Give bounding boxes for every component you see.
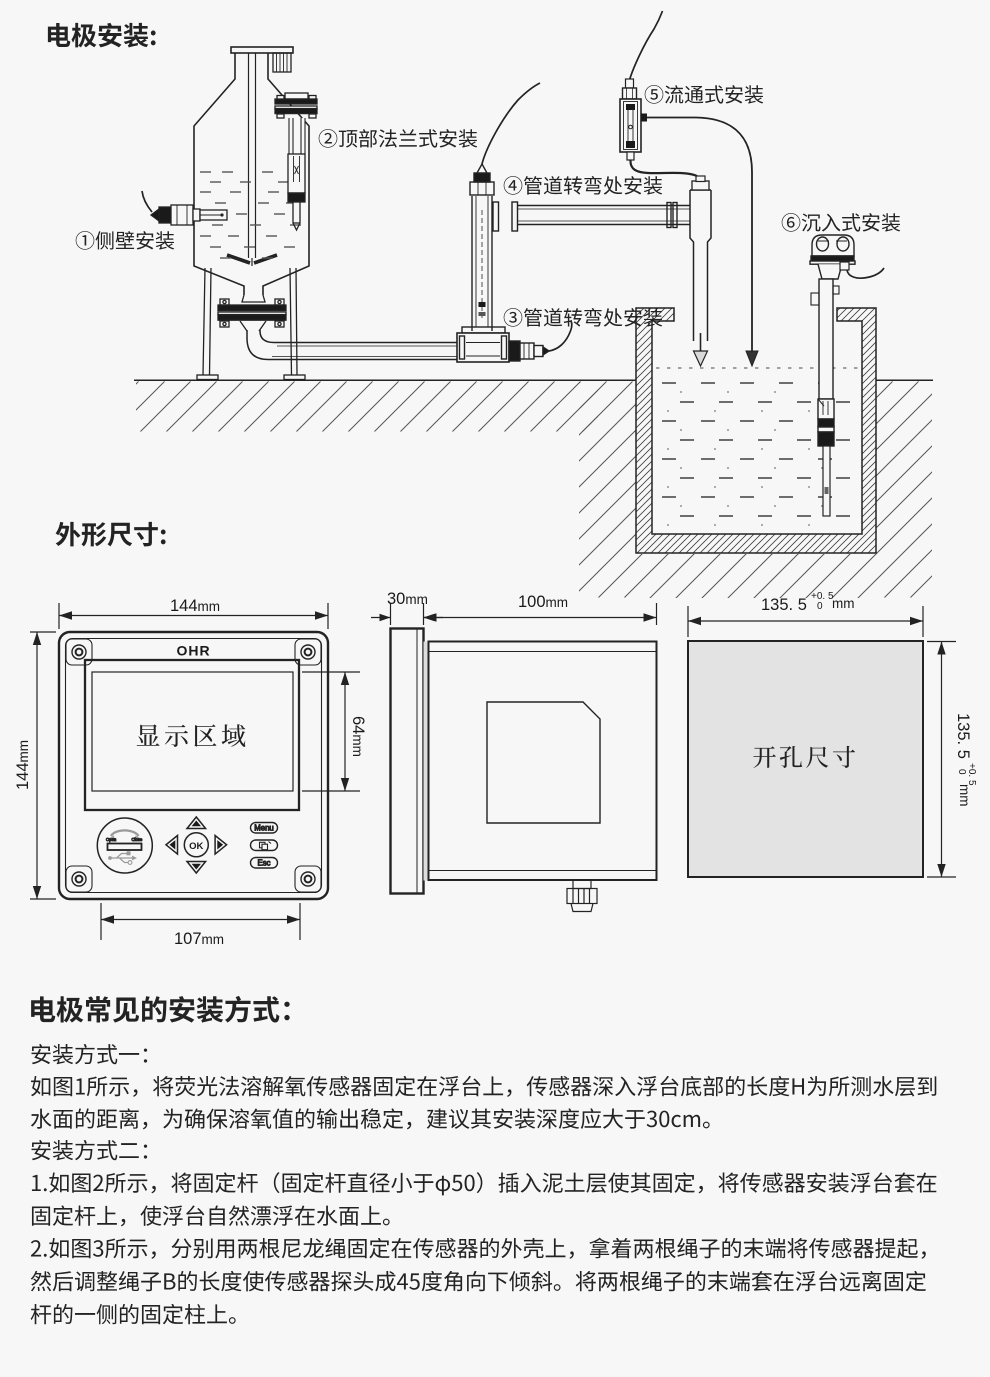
svg-text:mm: mm xyxy=(832,596,855,611)
svg-text:Close: Close xyxy=(132,837,143,842)
svg-text:135. 5: 135. 5 xyxy=(954,713,972,759)
svg-text:Esc: Esc xyxy=(258,859,271,868)
svg-text:107mm: 107mm xyxy=(174,930,224,948)
svg-text:30mm: 30mm xyxy=(387,590,428,608)
svg-text:0: 0 xyxy=(956,769,967,775)
svg-text:100mm: 100mm xyxy=(518,593,568,611)
svg-text:64mm: 64mm xyxy=(349,716,367,757)
svg-text:Menu: Menu xyxy=(254,824,274,833)
svg-text:mm: mm xyxy=(957,784,972,807)
svg-text:144mm: 144mm xyxy=(170,597,220,615)
svg-text:OHR: OHR xyxy=(176,643,210,659)
svg-text:0: 0 xyxy=(817,601,823,612)
svg-text:Open: Open xyxy=(106,837,117,842)
svg-text:144mm: 144mm xyxy=(14,740,32,790)
svg-text:OK: OK xyxy=(189,841,203,852)
svg-text:135. 5: 135. 5 xyxy=(761,596,807,614)
